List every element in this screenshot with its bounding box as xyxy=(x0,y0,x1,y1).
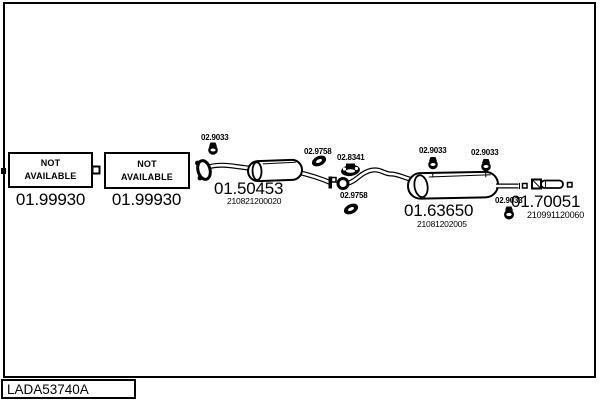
not-available-line2: AVAILABLE xyxy=(25,170,77,183)
part-number-clamp[interactable]: 02.8341 xyxy=(337,154,365,162)
front-flange-drawing xyxy=(195,159,212,180)
oe-number-front-muffler: 210821200020 xyxy=(227,197,281,206)
rubber-hanger-icon-front xyxy=(208,143,218,155)
gasket-icon-middle xyxy=(342,201,360,216)
part-number-hanger-rear-right[interactable]: 02.9033 xyxy=(471,149,499,157)
part-number-gasket-front[interactable]: 02.9758 xyxy=(304,148,332,156)
not-available-box-2: NOT AVAILABLE xyxy=(104,152,190,189)
not-available-line1: NOT xyxy=(137,158,157,171)
rubber-hanger-icon-rear-left xyxy=(428,157,438,169)
part-number-placeholder-1[interactable]: 01.99930 xyxy=(8,191,93,208)
diagram-frame xyxy=(4,3,595,377)
part-number-hanger-front[interactable]: 02.9033 xyxy=(201,134,229,142)
part-number-rear-muffler[interactable]: 01.63650 xyxy=(404,202,473,219)
drawing-code-box: LADA53740A xyxy=(1,379,136,399)
rubber-hanger-icon-rear-right xyxy=(481,159,491,171)
exhaust-parts-diagram: NOT AVAILABLE 01.99930 NOT AVAILABLE 01.… xyxy=(0,0,600,400)
part-number-placeholder-2[interactable]: 01.99930 xyxy=(104,191,189,208)
drawing-code: LADA53740A xyxy=(7,382,89,397)
part-number-front-muffler[interactable]: 01.50453 xyxy=(214,180,283,197)
part-number-tailpipe[interactable]: 01.70051 xyxy=(511,193,580,210)
not-available-line1: NOT xyxy=(41,157,61,170)
tailpipe-tip-drawing xyxy=(532,180,572,189)
oe-number-rear-muffler: 21081202005 xyxy=(417,220,467,229)
part-number-gasket-middle[interactable]: 02.9758 xyxy=(340,192,368,200)
flange-joint-drawing xyxy=(329,177,349,189)
rear-muffler-drawing xyxy=(408,171,499,199)
not-available-line2: AVAILABLE xyxy=(121,171,173,184)
tailpipe-drawing xyxy=(496,183,527,189)
part-number-hanger-rear-left[interactable]: 02.9033 xyxy=(419,147,447,155)
not-available-box-1: NOT AVAILABLE xyxy=(8,152,93,188)
oe-number-tailpipe: 210991120060 xyxy=(527,211,584,220)
